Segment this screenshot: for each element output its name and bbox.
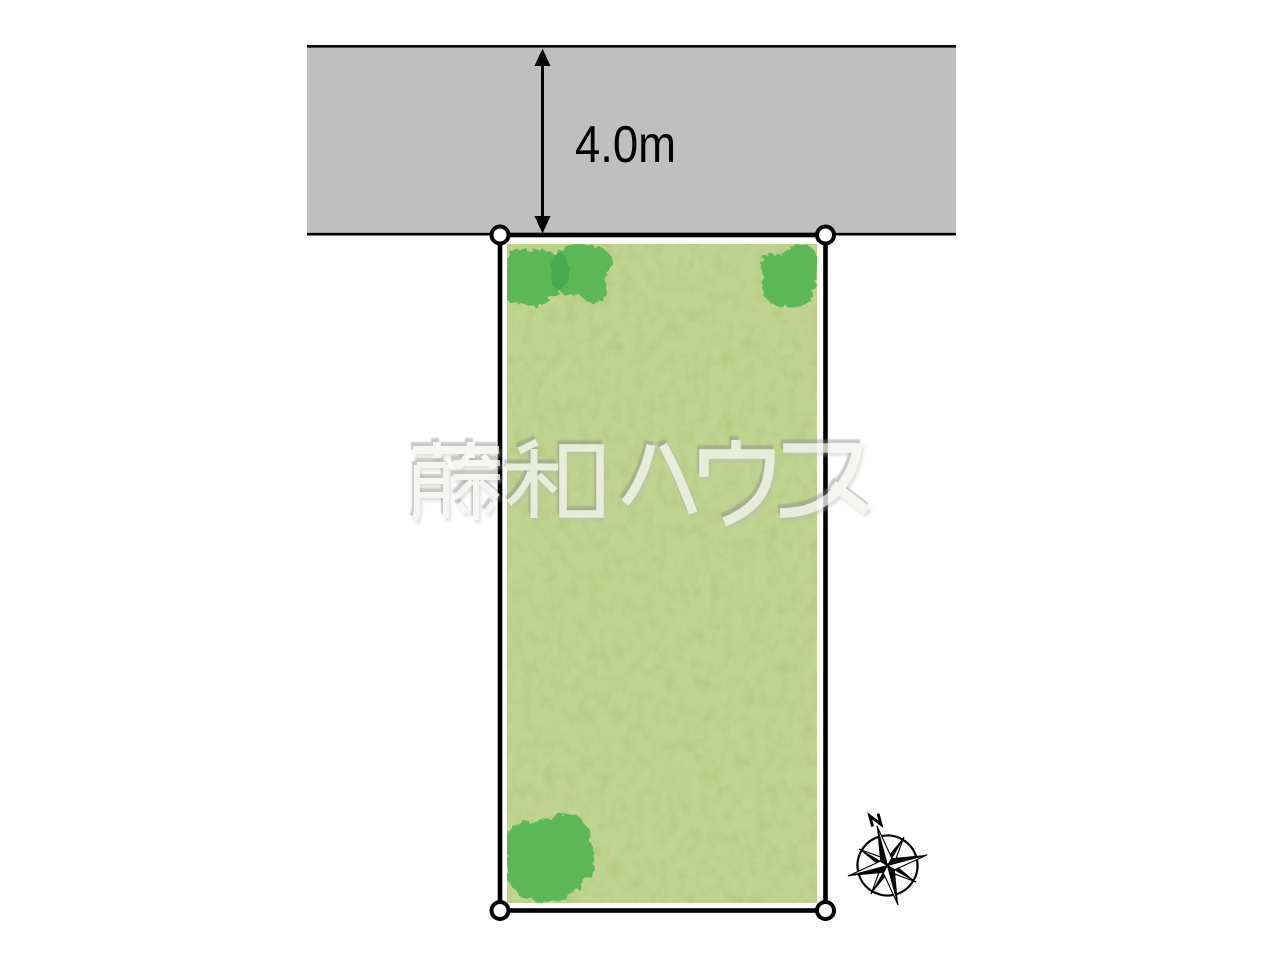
svg-text:4.0m: 4.0m — [575, 116, 676, 174]
